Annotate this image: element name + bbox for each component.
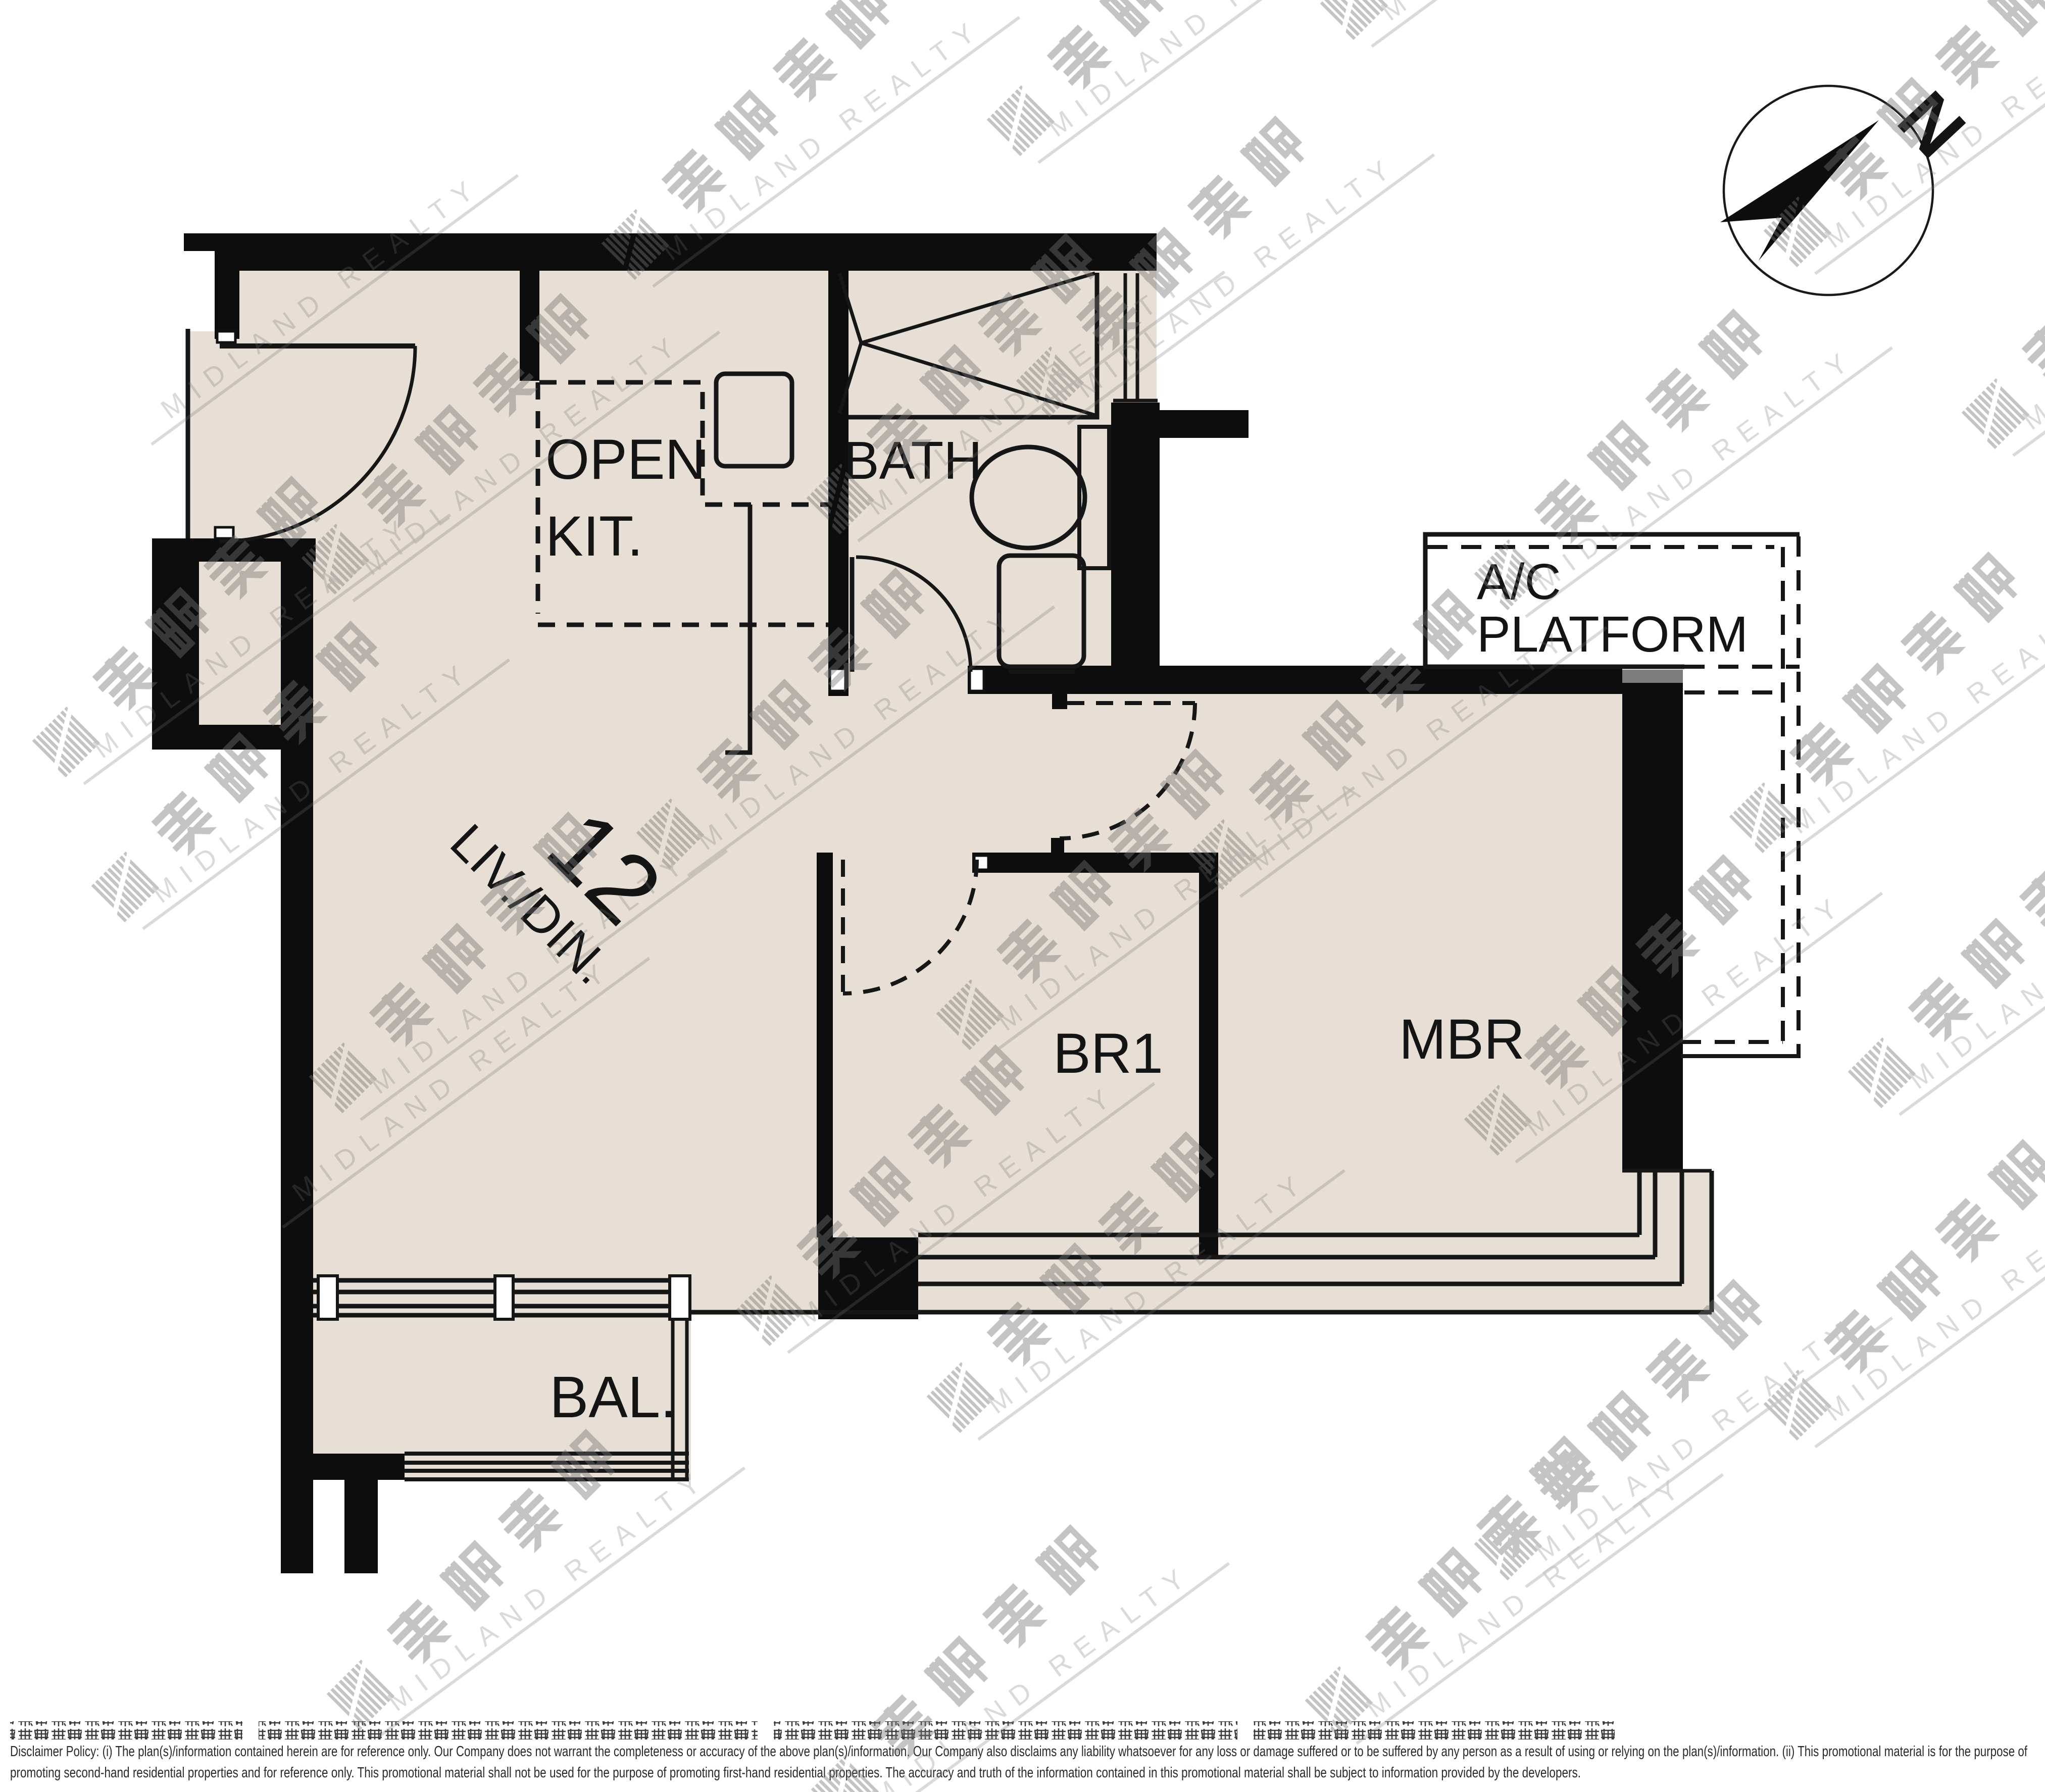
- svg-text:BR1: BR1: [1053, 1022, 1163, 1085]
- svg-text:BAL.: BAL.: [550, 1364, 676, 1430]
- svg-text:KIT.: KIT.: [545, 505, 643, 568]
- svg-text:Disclaimer Policy: (i) The pla: Disclaimer Policy: (i) The plan(s)/infor…: [10, 1744, 2028, 1760]
- svg-text:MBR: MBR: [1399, 1008, 1525, 1071]
- svg-text:promoting second-hand resident: promoting second-hand residential proper…: [10, 1765, 1581, 1781]
